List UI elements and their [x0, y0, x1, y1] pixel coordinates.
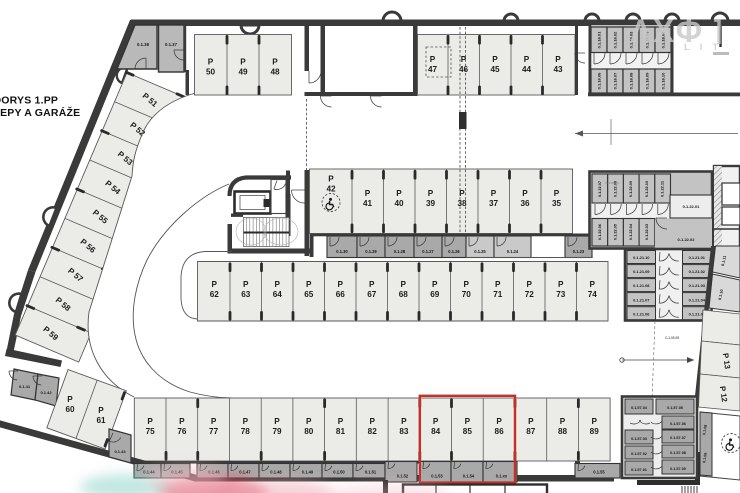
svg-text:P: P	[369, 280, 375, 289]
svg-text:47: 47	[428, 65, 438, 74]
svg-text:P: P	[554, 189, 560, 198]
svg-text:P: P	[272, 57, 278, 66]
svg-text:0.1.22.07: 0.1.22.07	[597, 181, 602, 197]
svg-text:P: P	[211, 417, 217, 426]
svg-text:0.1.18.10: 0.1.18.10	[661, 72, 666, 89]
svg-text:86: 86	[495, 427, 505, 436]
svg-text:P: P	[212, 280, 218, 289]
svg-text:0.1.xx: 0.1.xx	[496, 474, 508, 479]
svg-text:68: 68	[399, 290, 409, 299]
svg-text:0.1.24: 0.1.24	[507, 249, 519, 254]
svg-text:73: 73	[556, 290, 566, 299]
svg-text:60: 60	[65, 405, 75, 414]
svg-text:P: P	[432, 280, 438, 289]
svg-text:P: P	[430, 55, 436, 64]
svg-text:79: 79	[272, 427, 282, 436]
svg-text:P: P	[338, 417, 344, 426]
svg-text:PŮDORYS 1.PP: PŮDORYS 1.PP	[0, 93, 58, 107]
svg-text:50: 50	[206, 67, 216, 76]
svg-text:0.1.18.06: 0.1.18.06	[597, 72, 602, 89]
svg-text:P: P	[560, 417, 566, 426]
svg-text:89: 89	[590, 427, 600, 436]
svg-text:0.1.22.04: 0.1.22.04	[628, 223, 633, 240]
svg-text:P: P	[555, 55, 561, 64]
svg-text:64: 64	[273, 290, 283, 299]
svg-text:0.1.21.04: 0.1.21.04	[689, 297, 706, 302]
svg-text:0.1.48: 0.1.48	[270, 470, 282, 475]
svg-text:LIT: LIT	[684, 42, 728, 53]
svg-text:45: 45	[490, 65, 500, 74]
svg-text:37: 37	[489, 199, 499, 208]
svg-text:P: P	[98, 406, 104, 415]
svg-text:C-1.05.05: C-1.05.05	[665, 336, 679, 340]
svg-text:0.1.21.07: 0.1.21.07	[633, 297, 649, 302]
svg-text:P: P	[592, 417, 598, 426]
svg-text:0.1.57.04: 0.1.57.04	[631, 406, 648, 410]
svg-text:66: 66	[336, 290, 346, 299]
svg-text:67: 67	[367, 290, 377, 299]
svg-text:85: 85	[463, 427, 473, 436]
svg-text:P: P	[67, 395, 73, 404]
svg-text:0.1.18.08: 0.1.18.08	[629, 72, 634, 89]
svg-text:0.1.18.02: 0.1.18.02	[613, 31, 618, 48]
svg-text:0.1.42: 0.1.42	[40, 390, 52, 395]
svg-text:0.1.57.08: 0.1.57.08	[670, 451, 686, 455]
svg-text:P: P	[528, 417, 534, 426]
svg-text:0.1.23: 0.1.23	[573, 249, 585, 254]
svg-text:0.1.52: 0.1.52	[397, 474, 409, 479]
svg-text:0.1.57.05: 0.1.57.05	[667, 406, 683, 410]
svg-text:0.1.29: 0.1.29	[365, 249, 377, 254]
svg-text:0-1.22.02: 0-1.22.02	[678, 237, 696, 242]
svg-text:0.1.27: 0.1.27	[422, 249, 434, 254]
svg-text:71: 71	[493, 290, 503, 299]
svg-text:C-1.05.04: C-1.05.04	[605, 181, 619, 185]
svg-text:P: P	[522, 189, 528, 198]
svg-text:P: P	[396, 189, 402, 198]
svg-text:0.1.18.09: 0.1.18.09	[645, 72, 650, 89]
svg-text:P: P	[433, 417, 439, 426]
svg-text:0.1.49: 0.1.49	[302, 470, 314, 475]
svg-text:0.1.22.03: 0.1.22.03	[644, 223, 649, 240]
svg-text:0.1.38: 0.1.38	[137, 42, 150, 47]
svg-text:0.1.22.09: 0.1.22.09	[628, 180, 633, 197]
svg-text:0.1.54: 0.1.54	[463, 474, 475, 479]
svg-text:39: 39	[426, 199, 436, 208]
svg-text:0.1.21.03: 0.1.21.03	[689, 283, 706, 288]
svg-text:36: 36	[520, 199, 530, 208]
svg-text:72: 72	[525, 290, 535, 299]
svg-text:P: P	[465, 417, 471, 426]
svg-text:0.1.18.07: 0.1.18.07	[613, 72, 618, 89]
svg-text:0.1.41: 0.1.41	[19, 384, 31, 389]
svg-text:0.1.53: 0.1.53	[431, 474, 443, 479]
svg-text:74: 74	[588, 290, 598, 299]
svg-text:0.1.25: 0.1.25	[474, 249, 486, 254]
svg-text:P: P	[496, 417, 502, 426]
svg-text:81: 81	[336, 427, 346, 436]
svg-text:48: 48	[270, 67, 280, 76]
svg-text:80: 80	[304, 427, 314, 436]
svg-text:0.1.37: 0.1.37	[165, 42, 178, 47]
svg-text:84: 84	[431, 427, 441, 436]
svg-text:P: P	[527, 280, 533, 289]
svg-text:P: P	[306, 280, 312, 289]
svg-text:0.1.18.01: 0.1.18.01	[597, 31, 602, 48]
svg-text:69: 69	[430, 290, 440, 299]
svg-text:P: P	[338, 280, 344, 289]
svg-text:P: P	[365, 189, 371, 198]
svg-text:0.1.26: 0.1.26	[448, 249, 460, 254]
svg-text:P: P	[306, 417, 312, 426]
svg-text:62: 62	[210, 290, 220, 299]
svg-text:0.1.57.01: 0.1.57.01	[631, 468, 647, 472]
svg-text:0.1.21.02: 0.1.21.02	[689, 269, 706, 274]
svg-text:0.1.22.11: 0.1.22.11	[660, 180, 665, 197]
svg-text:78: 78	[241, 427, 251, 436]
svg-text:P: P	[558, 280, 564, 289]
svg-text:P: P	[492, 55, 498, 64]
svg-text:41: 41	[363, 199, 373, 208]
svg-text:63: 63	[241, 290, 251, 299]
svg-text:P: P	[590, 280, 596, 289]
svg-text:P: P	[179, 417, 185, 426]
svg-text:0.1.28: 0.1.28	[394, 249, 406, 254]
svg-text:61: 61	[96, 416, 106, 425]
svg-text:49: 49	[238, 67, 248, 76]
svg-text:0.1.22.01: 0.1.22.01	[683, 204, 700, 209]
svg-text:0.1.21.01: 0.1.21.01	[689, 255, 706, 260]
svg-text:P: P	[464, 280, 470, 289]
svg-text:0.1.50: 0.1.50	[333, 470, 345, 475]
svg-text:87: 87	[526, 427, 536, 436]
svg-text:P: P	[240, 57, 246, 66]
svg-text:0.1.57.06: 0.1.57.06	[670, 422, 686, 426]
svg-text:0.1.51: 0.1.51	[365, 470, 377, 475]
svg-text:P: P	[274, 417, 280, 426]
svg-text:0.1.21.09: 0.1.21.09	[633, 269, 650, 274]
svg-text:P: P	[401, 280, 407, 289]
svg-text:0.1.57.02: 0.1.57.02	[631, 452, 647, 456]
svg-text:P: P	[328, 174, 334, 183]
svg-text:0.1.57.09: 0.1.57.09	[670, 467, 686, 471]
svg-text:35: 35	[552, 199, 562, 208]
svg-text:P: P	[243, 280, 249, 289]
svg-text:0.1.21.10: 0.1.21.10	[633, 255, 649, 260]
svg-text:0.1.55: 0.1.55	[593, 470, 605, 475]
svg-text:P: P	[275, 280, 281, 289]
svg-text:65: 65	[304, 290, 314, 299]
svg-text:83: 83	[399, 427, 409, 436]
svg-text:P: P	[243, 417, 249, 426]
svg-text:77: 77	[209, 427, 219, 436]
svg-text:P: P	[491, 189, 497, 198]
svg-text:P: P	[524, 55, 530, 64]
svg-text:0.1.22.10: 0.1.22.10	[644, 181, 649, 197]
svg-text:0.1.22.06: 0.1.22.06	[597, 223, 602, 240]
svg-text:42: 42	[326, 184, 336, 193]
svg-text:P: P	[208, 57, 214, 66]
svg-text:70: 70	[462, 290, 472, 299]
svg-text:0.1.57.07: 0.1.57.07	[670, 436, 686, 440]
svg-text:88: 88	[558, 427, 568, 436]
svg-text:0.1.47: 0.1.47	[239, 470, 251, 475]
svg-text:0.1.21.06: 0.1.21.06	[633, 311, 650, 316]
svg-text:SKLEPY A GARÁŽE: SKLEPY A GARÁŽE	[0, 106, 80, 119]
svg-text:P: P	[401, 417, 407, 426]
svg-text:43: 43	[553, 65, 563, 74]
svg-text:76: 76	[177, 427, 187, 436]
svg-text:0.1.21.08: 0.1.21.08	[633, 283, 650, 288]
svg-text:0.1.30: 0.1.30	[336, 249, 348, 254]
svg-text:82: 82	[368, 427, 378, 436]
svg-text:P: P	[428, 189, 434, 198]
svg-text:P: P	[147, 417, 153, 426]
svg-text:P: P	[369, 417, 375, 426]
svg-text:75: 75	[146, 427, 156, 436]
svg-text:0.1.57.03: 0.1.57.03	[631, 437, 647, 441]
svg-text:44: 44	[522, 65, 532, 74]
svg-text:0.1.22.05: 0.1.22.05	[613, 223, 618, 240]
svg-text:40: 40	[394, 199, 404, 208]
svg-text:P: P	[495, 280, 501, 289]
svg-text:0.1.43: 0.1.43	[114, 449, 126, 454]
